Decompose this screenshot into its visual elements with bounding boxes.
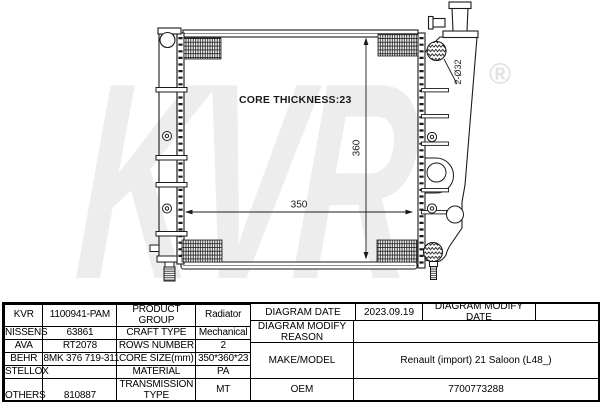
attribute-value: Mechanical [196, 327, 251, 340]
attribute-label: CORE SIZE(mm) [117, 353, 196, 366]
core-height-label: 360 [352, 139, 363, 156]
overflow-pipe [429, 17, 446, 30]
left-mount-tab [150, 245, 159, 252]
fin-blocks [182, 34, 418, 262]
core [177, 30, 425, 269]
brand-part-number: 1100941-PAM [43, 305, 117, 327]
attribute-value: 2 [196, 340, 251, 353]
brand-part-number: 810887 [43, 379, 117, 402]
core-width-label: 350 [291, 200, 308, 211]
dimension-height [364, 38, 369, 260]
brand-name: NISSENS [5, 327, 43, 340]
right-tank [422, 2, 479, 280]
spec-table-right: DIAGRAM DATE 2023.09.19 DIAGRAM MODIFY D… [251, 304, 598, 400]
brand-part-number [43, 366, 117, 379]
fin-block-top-right [378, 34, 418, 56]
brand-part-number: 63861 [43, 327, 117, 340]
spec-table-left: KVR 1100941-PAM PRODUCT GROUP Radiator N… [4, 304, 251, 402]
left-tank-port [160, 33, 175, 48]
fin-block-top-left [184, 38, 221, 59]
brand-name: AVA [5, 340, 43, 353]
attribute-label: PRODUCT GROUP [117, 305, 196, 327]
outlet-port [424, 243, 443, 262]
make-model-value: Renault (import) 21 Saloon (L48_) [354, 343, 598, 378]
attribute-label: CRAFT TYPE [117, 327, 196, 340]
diagram-modify-date-label: DIAGRAM MODIFY DATE [423, 304, 536, 320]
oem-label: OEM [251, 379, 354, 400]
attribute-value: 350*360*23 [196, 353, 251, 366]
attribute-label: TRANSMISSION TYPE [117, 379, 196, 402]
attribute-value: PA [196, 366, 251, 379]
diagram-modify-date-value [536, 304, 598, 320]
filler-cap [443, 2, 478, 38]
catalog-page: KVR ® [0, 0, 600, 402]
inlet-port [427, 42, 446, 61]
attribute-label: ROWS NUMBER [117, 340, 196, 353]
attribute-value: MT [196, 379, 251, 402]
drain-plug [157, 256, 177, 281]
diagram-date-value: 2023.09.19 [356, 304, 423, 320]
attribute-value: Radiator [196, 305, 251, 327]
fin-block-bottom-right [377, 240, 417, 262]
brand-name: KVR [5, 305, 43, 327]
brand-name: STELLOX [5, 366, 43, 379]
radiator-diagram: CORE THICKNESS:23 350 360 2-Ø32 [0, 0, 600, 302]
brand-name: OTHERS [5, 379, 43, 402]
diagram-modify-reason-value [354, 321, 598, 342]
oem-value: 7700773288 [354, 379, 598, 400]
spec-table: KVR 1100941-PAM PRODUCT GROUP Radiator N… [2, 302, 600, 402]
brand-part-number: RT2078 [43, 340, 117, 353]
bottom-stud [430, 262, 438, 280]
brand-part-number: 8MK 376 719-311 [43, 353, 117, 366]
fin-block-bottom-left [182, 240, 222, 262]
diagram-modify-reason-label: DIAGRAM MODIFY REASON [251, 321, 354, 342]
diagram-date-label: DIAGRAM DATE [251, 304, 356, 320]
make-model-label: MAKE/MODEL [251, 343, 354, 378]
inlet-size-label: 2-Ø32 [453, 59, 463, 84]
core-thickness-label: CORE THICKNESS:23 [239, 94, 352, 106]
brand-name: BEHR [5, 353, 43, 366]
attribute-label: MATERIAL [117, 366, 196, 379]
